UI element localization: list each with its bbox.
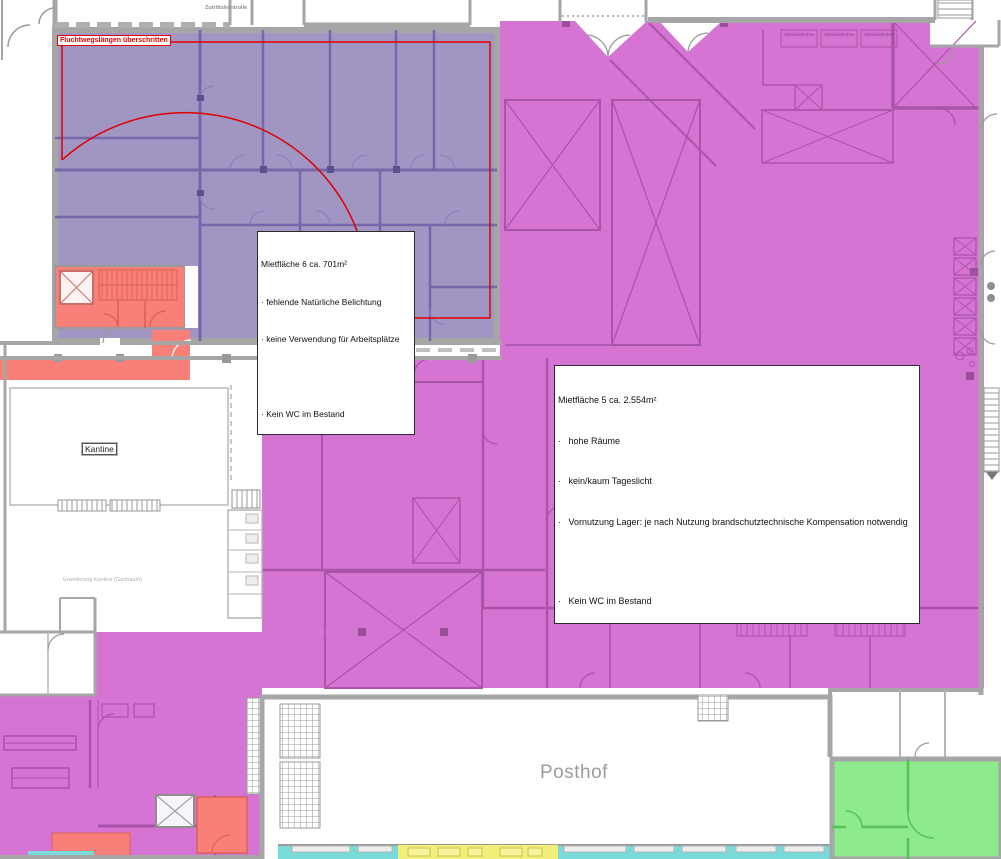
loading-dock-label: Oberladebühne	[821, 32, 857, 37]
wc-strip	[228, 510, 262, 618]
annotation-item	[261, 371, 411, 383]
green-area	[832, 759, 1001, 859]
annotation-title: Mietfläche 5 ca. 2.554m²	[558, 394, 916, 408]
loading-dock-label: Oberladebühne	[781, 32, 817, 37]
kantine-room	[10, 388, 228, 505]
yellow-slats	[408, 848, 542, 856]
shelf-icon	[232, 490, 260, 508]
table-rows	[58, 500, 106, 511]
erweiterung-kantine-label: Erweiterung Kantine (Gastraum)	[63, 577, 142, 583]
annotation-item	[558, 556, 916, 568]
table-rows	[110, 500, 160, 511]
stairs-icon	[984, 388, 999, 472]
annotation-item: · hohe Räume	[558, 435, 916, 449]
kantine-label: Kantine	[82, 443, 117, 455]
annotation-mietflaeche-5: Mietfläche 5 ca. 2.554m² · hohe Räume · …	[554, 365, 920, 624]
annotation-item: · keine Verwendung für Arbeitsplätze	[261, 333, 411, 346]
annotation-mietflaeche-6: Mietfläche 6 ca. 701m² · fehlende Natürl…	[257, 231, 415, 435]
zone-green	[832, 759, 1001, 859]
alert-corridor	[0, 359, 190, 380]
grating-icon	[280, 704, 320, 758]
loading-dock-label: Oberladebühne	[861, 32, 897, 37]
annotation-item: · fehlende Natürliche Belichtung	[261, 296, 411, 309]
annotation-title: Mietfläche 6 ca. 701m²	[261, 258, 411, 271]
escape-route-warning-label: Fluchtwegslängen überschritten	[57, 35, 171, 46]
grating-icon	[280, 762, 320, 828]
alert-room-south	[197, 797, 247, 853]
annotation-item: · Kein WC im Bestand	[558, 595, 916, 609]
zutrittskontrolle-label: Zutrittskontrolle	[205, 5, 247, 11]
posthof-label: Posthof	[540, 762, 608, 784]
annotation-item: · Kein WC im Bestand	[261, 408, 411, 421]
grating-icon	[698, 695, 728, 721]
annotation-item: · kein/kaum Tageslicht	[558, 475, 916, 489]
floorplan-canvas: Fluchtwegslängen überschritten Mietfläch…	[0, 0, 1001, 859]
kantine-area	[10, 385, 262, 618]
annotation-item: · Vornutzung Lager: je nach Nutzung bran…	[558, 516, 916, 530]
